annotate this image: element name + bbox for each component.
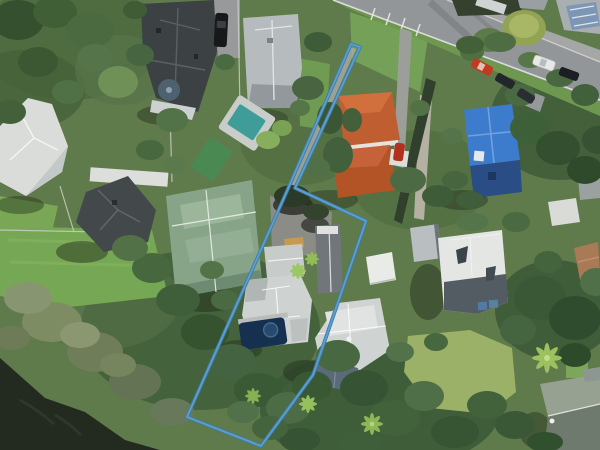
house-grey-north xyxy=(243,14,302,108)
shed-white-east xyxy=(366,252,396,285)
aerial-photo-canvas xyxy=(0,0,600,450)
terrace-white-east xyxy=(548,198,580,226)
aerial-map-view[interactable] xyxy=(0,0,600,450)
black-car-driveway xyxy=(214,13,229,48)
house-blue xyxy=(464,104,522,198)
